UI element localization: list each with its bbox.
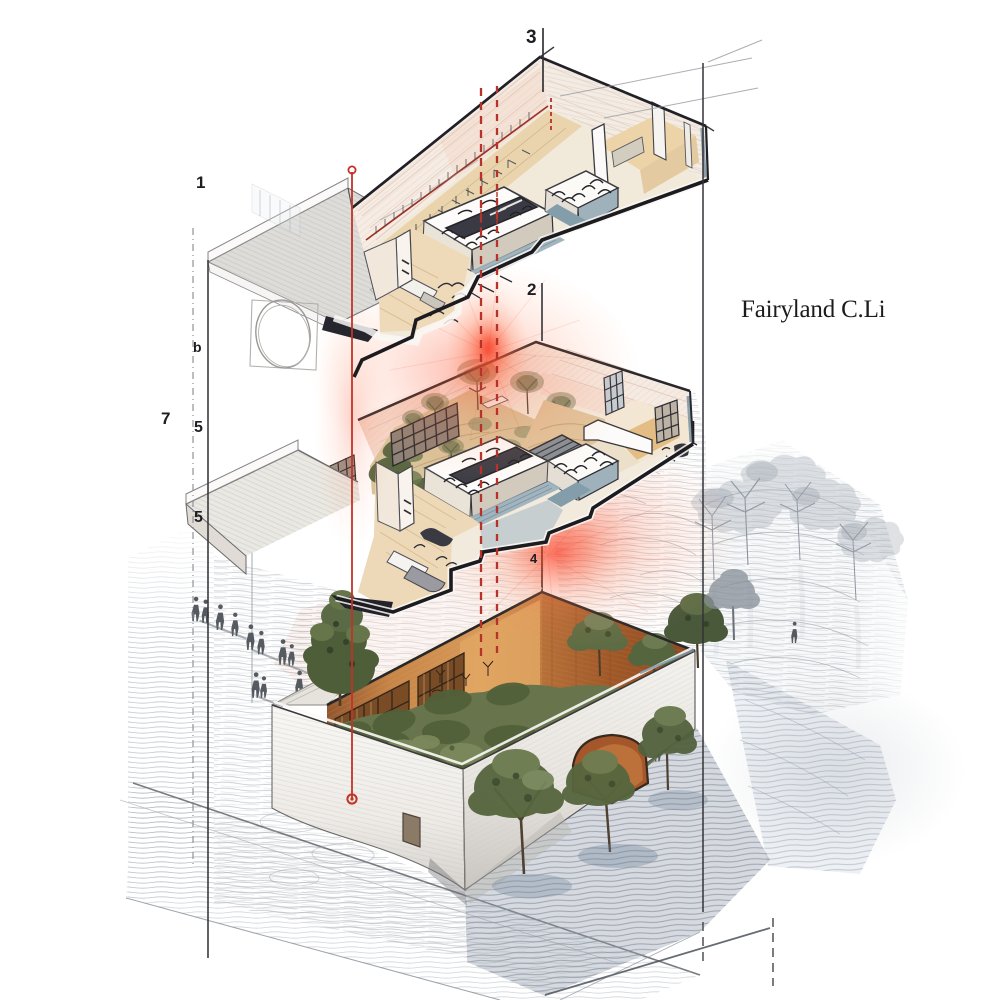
svg-text:Fairyland C.Li: Fairyland C.Li <box>741 296 886 323</box>
svg-text:5: 5 <box>194 509 203 526</box>
svg-text:b: b <box>193 339 202 355</box>
svg-text:2: 2 <box>527 280 536 299</box>
svg-text:1: 1 <box>196 173 205 192</box>
svg-text:5: 5 <box>194 419 203 436</box>
svg-text:4: 4 <box>530 551 538 566</box>
svg-text:7: 7 <box>161 409 170 428</box>
svg-text:3: 3 <box>526 27 537 48</box>
